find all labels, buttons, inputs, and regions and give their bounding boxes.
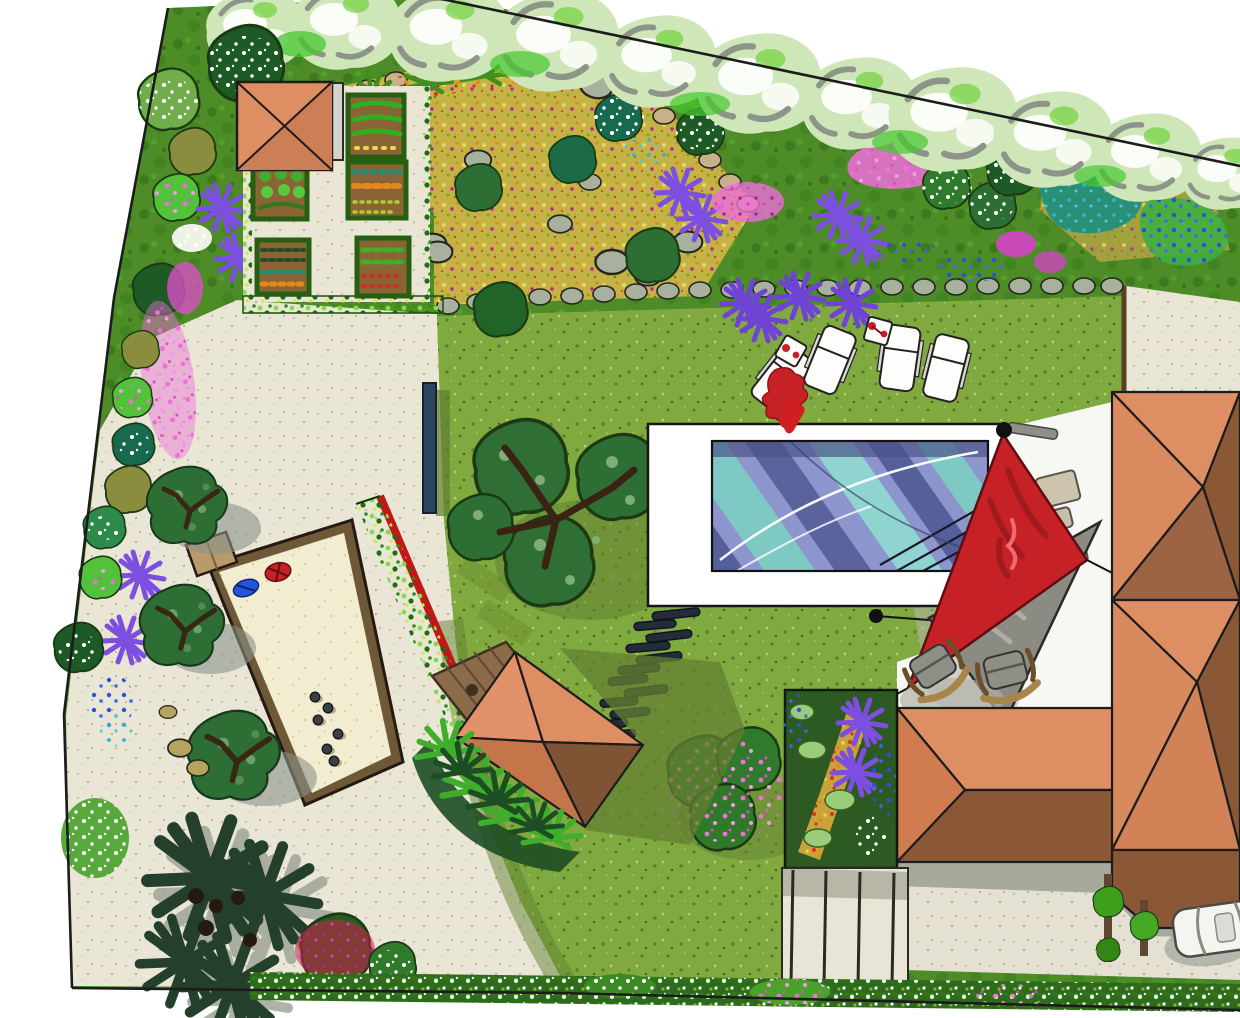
garden-plan-canvas xyxy=(0,0,1240,1018)
water-edge-shade xyxy=(712,441,988,457)
roof-block-north xyxy=(1112,392,1240,600)
garden-shed xyxy=(237,82,332,170)
magenta-drift xyxy=(167,262,203,314)
roof-block-middle xyxy=(1112,600,1240,850)
magenta-flowers xyxy=(996,231,1036,257)
garden-steps xyxy=(782,868,908,986)
screen-shadow xyxy=(436,390,450,516)
courtyard-path xyxy=(1124,286,1240,392)
roof-block-wing xyxy=(897,708,1112,862)
privacy-screen xyxy=(423,383,450,516)
cyan-flowers xyxy=(622,138,670,166)
blue-flowers xyxy=(938,254,1006,282)
hedge-frame xyxy=(243,296,443,313)
perennial-flower-bed xyxy=(772,690,897,878)
round-shrub xyxy=(474,282,528,336)
